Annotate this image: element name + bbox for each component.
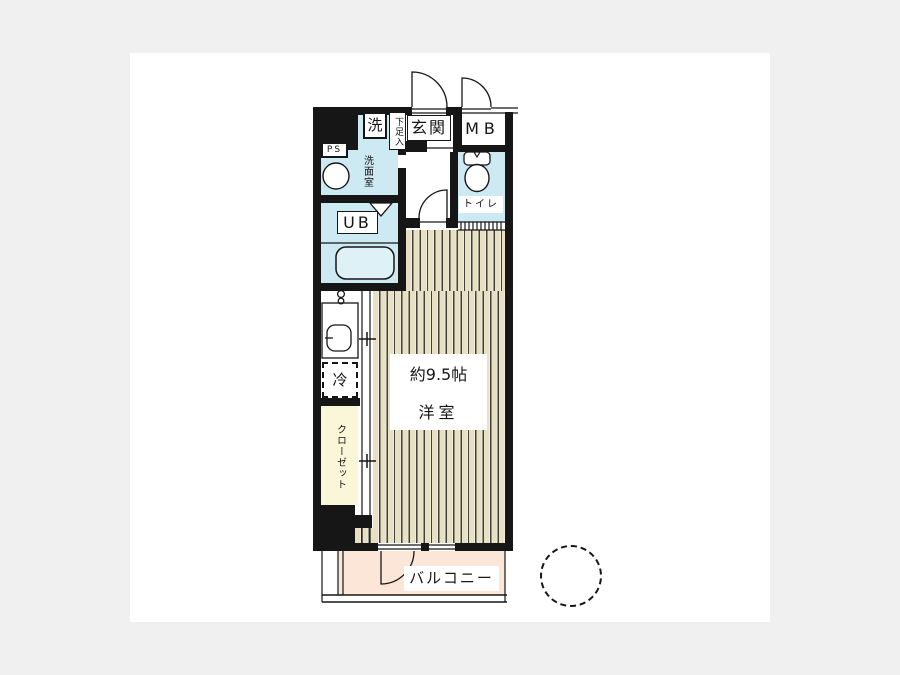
floor-plan-page: PS 洗 下足入 玄関 MB 洗面室 トイレ UB 冷 クローゼット 約9.5帖… <box>0 0 900 675</box>
western-room-floor-corner <box>355 528 373 543</box>
unit-bath-label: UB <box>337 211 378 234</box>
refrigerator-label: 冷 <box>322 362 358 398</box>
western-room-label: 約9.5帖 洋室 <box>390 354 487 430</box>
room-size-label: 約9.5帖 <box>410 361 467 385</box>
closet-label: クローゼット <box>331 409 348 505</box>
entrance-label: 玄関 <box>407 115 451 141</box>
room-type-label: 洋室 <box>418 399 458 423</box>
ps-label: PS <box>321 142 348 158</box>
balcony-label: バルコニー <box>404 566 499 591</box>
meter-box-label: MB <box>460 117 505 141</box>
hallway-area <box>406 152 450 218</box>
toilet-label: トイレ <box>459 196 503 213</box>
washroom-label: 洗面室 <box>358 146 375 196</box>
shoe-cabinet-label: 下足入 <box>389 112 406 150</box>
washer-label: 洗 <box>363 112 387 139</box>
western-room-floor-upper <box>406 230 505 291</box>
compass-icon <box>540 545 602 607</box>
